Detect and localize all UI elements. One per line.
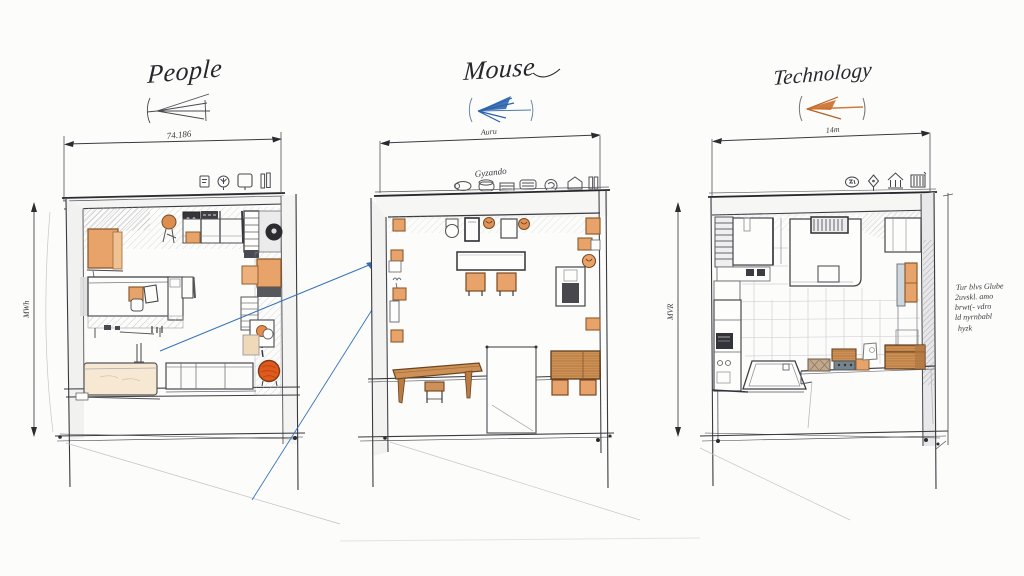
svg-text:Auru: Auru — [479, 127, 497, 137]
svg-text:14m: 14m — [825, 125, 840, 135]
svg-text:Mouse: Mouse — [462, 52, 537, 86]
svg-text:MWh: MWh — [22, 301, 31, 319]
svg-text:Tur blvs Glube: Tur blvs Glube — [956, 281, 1004, 292]
svg-text:hyzk: hyzk — [958, 323, 973, 333]
svg-text:brwt(- vdro: brwt(- vdro — [955, 302, 992, 312]
svg-text:ld nyrnbabl: ld nyrnbabl — [955, 312, 993, 322]
svg-text:2uvskl. amo: 2uvskl. amo — [955, 292, 994, 302]
svg-text:MVR: MVR — [666, 303, 675, 321]
